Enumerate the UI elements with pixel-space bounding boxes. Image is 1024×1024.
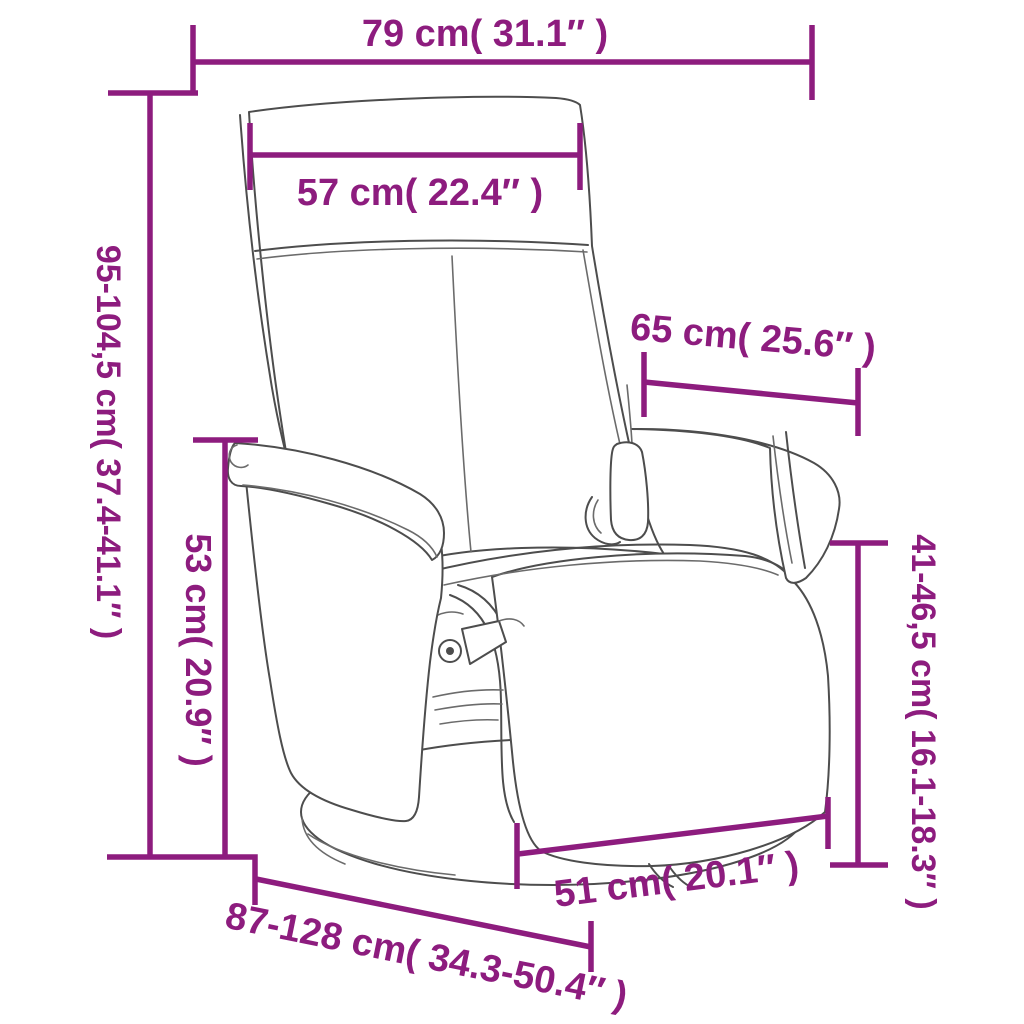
dim-label-seat-height: 41-46,5 cm( 16.1-18.3″ )	[904, 534, 942, 909]
dimension-seat-depth: 65 cm( 25.6″ )	[629, 306, 878, 436]
seat-rail-3	[440, 720, 498, 724]
dim-line	[644, 382, 858, 403]
dim-label-armrest-height: 53 cm( 20.9″ )	[178, 533, 219, 766]
diagram-svg: 79 cm( 31.1″ ) 57 cm( 22.4″ ) 95-104,5 c…	[0, 0, 1024, 1024]
mechanism-knob-center	[446, 647, 454, 655]
dimension-seat-height: 41-46,5 cm( 16.1-18.3″ )	[830, 534, 942, 909]
dim-label-total-width: 79 cm( 31.1″ )	[362, 13, 608, 55]
dimension-armrest-height: 53 cm( 20.9″ )	[178, 440, 258, 857]
dimension-diagram: 79 cm( 31.1″ ) 57 cm( 22.4″ ) 95-104,5 c…	[0, 0, 1024, 1024]
seat-rail-2	[435, 704, 502, 710]
seat-rail-1	[433, 690, 503, 697]
dimension-total-width: 79 cm( 31.1″ )	[193, 13, 812, 100]
mechanism-bracket	[462, 621, 506, 664]
dim-label-total-height: 95-104,5 cm( 37.4-41.1″ )	[89, 245, 127, 639]
dim-label-seat-depth: 65 cm( 25.6″ )	[629, 306, 878, 369]
footrest-panel	[492, 553, 830, 866]
chair-line-art	[228, 97, 840, 887]
remote-body	[610, 442, 648, 540]
dimension-total-height: 95-104,5 cm( 37.4-41.1″ )	[89, 93, 255, 905]
dim-label-headrest-width: 57 cm( 22.4″ )	[297, 172, 543, 214]
